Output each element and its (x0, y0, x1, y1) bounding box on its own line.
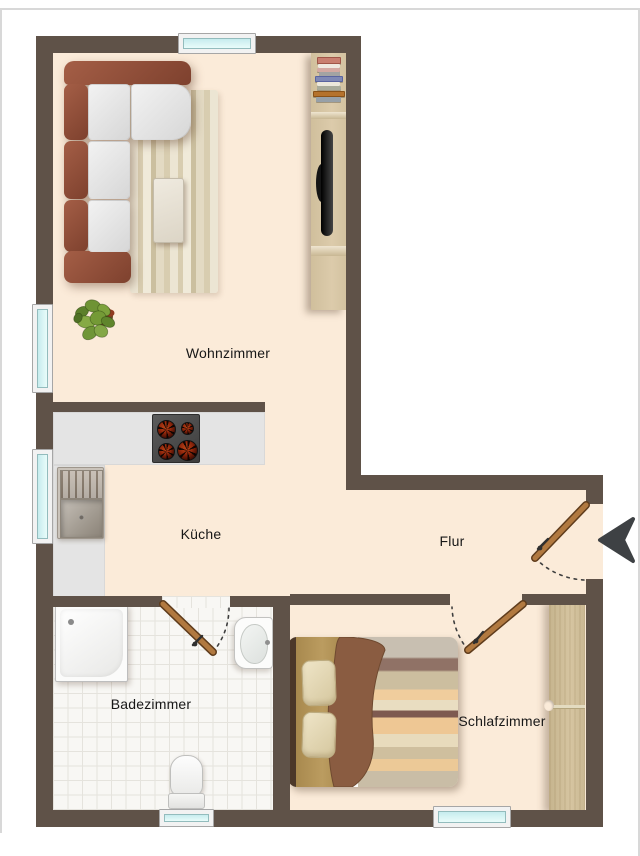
page-edge-line-top (0, 8, 640, 10)
burner (181, 422, 194, 435)
entry-arrow-icon (600, 519, 633, 561)
toilet-bowl (170, 755, 203, 797)
wall-living-kitchen-divider (53, 402, 265, 412)
wall-bedroom-top-right (522, 594, 586, 605)
wall-right-lower (586, 579, 603, 827)
sink-drain (79, 515, 84, 520)
window-glass (164, 814, 209, 822)
room-label-wohnzimmer: Wohnzimmer (186, 345, 270, 361)
burner (177, 440, 198, 461)
window-glass (37, 309, 48, 388)
faucet-icon (265, 640, 270, 645)
wall-right-upper-stub (586, 490, 603, 504)
wall-bedroom-top-left (290, 594, 450, 605)
room-label-kueche: Küche (181, 526, 222, 542)
tv (317, 128, 339, 240)
page-edge-line-left (0, 8, 2, 833)
toilet-tank (168, 793, 205, 809)
wardrobe (549, 600, 585, 810)
coffee-table (153, 178, 184, 243)
wall-bathroom-top-left (53, 596, 162, 607)
double-bed (288, 637, 458, 787)
wardrobe-divider (549, 705, 585, 709)
sofa-cushion (88, 141, 130, 199)
sideboard-gap (311, 246, 346, 256)
sofa-back-left-3 (64, 200, 88, 252)
tv-screen (321, 130, 333, 236)
bathroom-sink-bowl (240, 624, 268, 664)
sofa-chaise-cushion (131, 84, 191, 140)
bathroom-sink (234, 617, 273, 669)
sofa-back-top (64, 61, 191, 85)
sink-basin (60, 499, 103, 538)
window-glass (37, 454, 48, 539)
toilet (168, 755, 205, 809)
kitchen-sink (57, 467, 104, 539)
window-kitchen-left (32, 449, 53, 544)
sofa-back-left-2 (64, 141, 88, 199)
room-label-schlafzimmer: Schlafzimmer (458, 713, 545, 729)
shower-drain (68, 619, 74, 625)
window-glass (183, 38, 251, 49)
wall-bottom (36, 810, 603, 827)
sofa-cushion (88, 200, 130, 252)
book (317, 57, 341, 64)
sofa-back-left-1 (64, 84, 88, 140)
burner (157, 420, 176, 439)
wall-left (36, 36, 53, 827)
room-label-flur: Flur (440, 533, 465, 549)
wall-bathroom-right (273, 596, 290, 810)
window-top (178, 33, 256, 54)
sofa-cushion (88, 84, 130, 140)
room-label-badezimmer: Badezimmer (111, 696, 192, 712)
sofa (64, 61, 191, 283)
book (317, 86, 341, 90)
shower (55, 604, 128, 682)
book-stack (311, 53, 346, 108)
window-bedroom (433, 806, 511, 828)
pillow (301, 711, 337, 758)
book (316, 97, 341, 102)
sideboard-gap (311, 112, 346, 119)
pillow (301, 659, 337, 706)
stove (152, 414, 200, 463)
wall-flur-top (346, 475, 603, 490)
wardrobe-handle-notch (544, 700, 554, 711)
window-livingroom-left (32, 304, 53, 393)
window-glass (438, 811, 506, 823)
wall-livingroom-right (346, 36, 361, 475)
window-bathroom (159, 809, 214, 827)
floor-plan-page: Wohnzimmer Küche Flur Badezimmer Schlafz… (0, 0, 640, 856)
burner (158, 443, 175, 460)
sofa-front-bottom (64, 251, 131, 283)
bathroom-doorway-tiles (162, 596, 230, 608)
sink-drainer (60, 470, 103, 499)
